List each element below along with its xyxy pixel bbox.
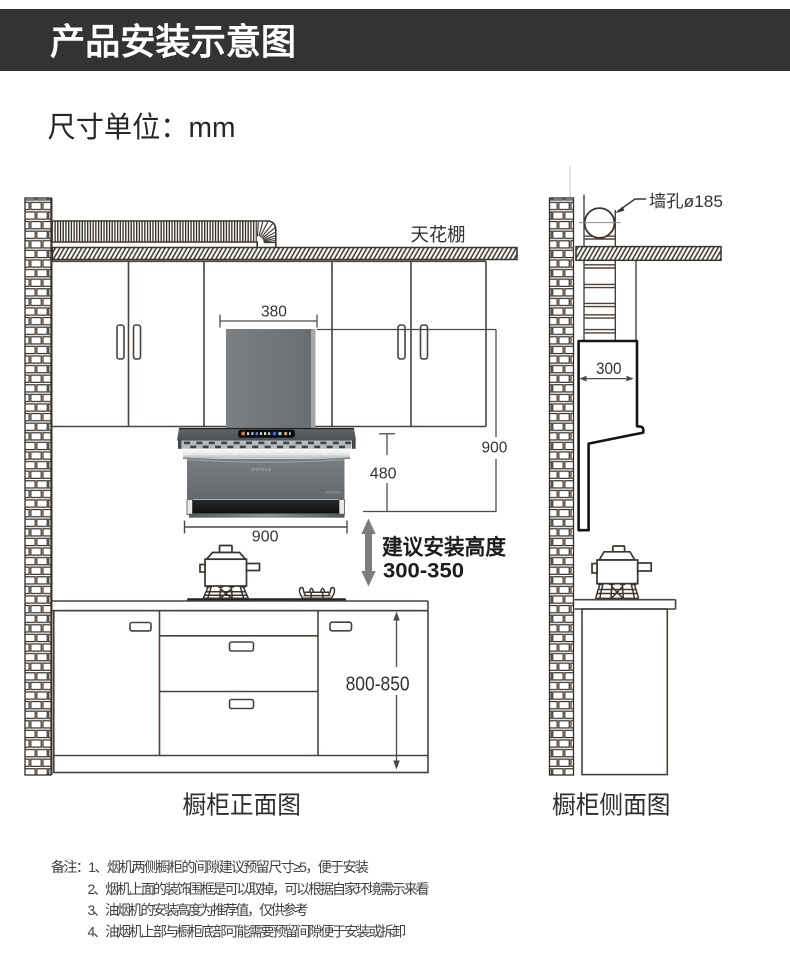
svg-text:2、烟机上面的装饰围框是可以取掉，可以根据自家环境需示来看: 2、烟机上面的装饰围框是可以取掉，可以根据自家环境需示来看 [88, 881, 430, 897]
svg-text:天花棚: 天花棚 [411, 224, 466, 245]
svg-text:备注：1、烟机两侧橱柜的间隙建议预留尺寸≥5，便于安装: 备注：1、烟机两侧橱柜的间隙建议预留尺寸≥5，便于安装 [51, 859, 369, 875]
svg-text:建议安装高度: 建议安装高度 [382, 535, 506, 560]
svg-text:300: 300 [596, 359, 622, 378]
svg-text:3、油烟机的安装高度为推荐值，仅供参考: 3、油烟机的安装高度为推荐值，仅供参考 [88, 902, 309, 918]
svg-text:橱柜正面图: 橱柜正面图 [183, 792, 302, 820]
svg-text:尺寸单位：mm: 尺寸单位：mm [48, 111, 236, 144]
svg-text:800-850: 800-850 [346, 674, 410, 696]
svg-text:FOTILE: FOTILE [252, 467, 272, 472]
svg-text:4、油烟机上部与橱柜底部可能需要预留间隙便于安装或拆卸: 4、油烟机上部与橱柜底部可能需要预留间隙便于安装或拆卸 [88, 923, 407, 939]
svg-text:900: 900 [482, 440, 508, 457]
svg-text:产品安装示意图: 产品安装示意图 [50, 21, 296, 62]
svg-text:380: 380 [261, 304, 287, 321]
svg-text:墙孔ø185: 墙孔ø185 [649, 192, 723, 211]
svg-text:480: 480 [370, 465, 397, 482]
svg-text:300-350: 300-350 [383, 560, 464, 583]
svg-text:橱柜侧面图: 橱柜侧面图 [552, 792, 671, 820]
svg-text:900: 900 [252, 529, 279, 546]
